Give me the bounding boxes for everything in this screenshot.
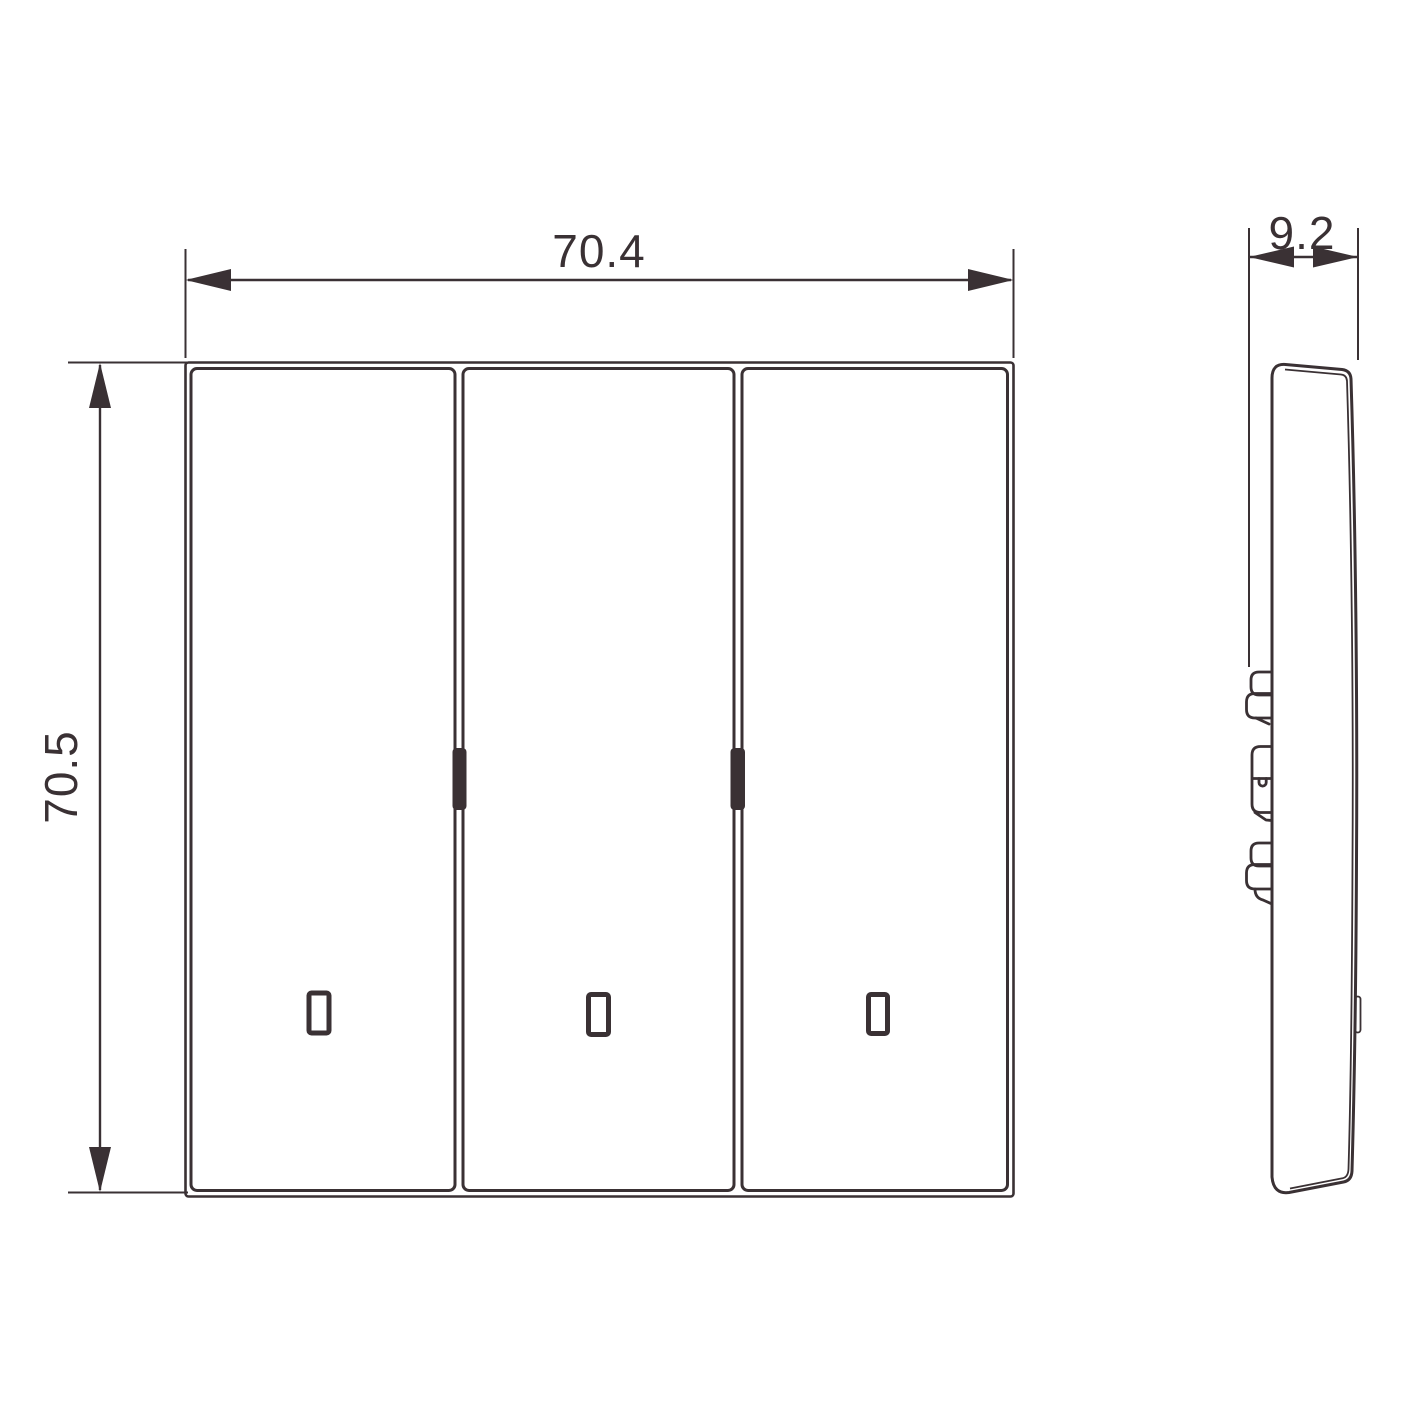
indicator-window-1	[309, 993, 329, 1033]
dimension-height: 70.5	[35, 363, 188, 1193]
dimension-width: 70.4	[186, 225, 1014, 358]
rocker-button-3	[742, 369, 1008, 1191]
mounting-clip-bottom	[1247, 843, 1273, 904]
technical-drawing-canvas: 70.4 70.5 9.2	[0, 0, 1417, 1417]
mounting-clip-top	[1247, 672, 1273, 724]
front-view	[186, 363, 1014, 1197]
rocker-seam-1	[453, 748, 467, 810]
rocker-button-2	[463, 369, 734, 1191]
side-profile-outline	[1272, 364, 1357, 1192]
side-view	[1247, 364, 1361, 1192]
dim-width-label: 70.4	[552, 225, 646, 277]
mounting-clip-middle	[1252, 747, 1272, 821]
divider-highlight-slot	[457, 478, 461, 505]
side-latch-bump	[1355, 997, 1361, 1033]
arrowhead-down-icon	[89, 1147, 111, 1192]
indicator-window-3	[869, 995, 888, 1034]
dim-depth-label: 9.2	[1269, 207, 1336, 259]
arrowhead-left-icon	[186, 269, 232, 291]
indicator-window-2	[589, 995, 609, 1035]
dim-height-label: 70.5	[35, 730, 87, 824]
arrowhead-right-icon	[968, 269, 1014, 291]
switch-dimension-drawing: 70.4 70.5 9.2	[0, 0, 1417, 1417]
arrowhead-up-icon	[89, 363, 111, 408]
rocker-button-1	[191, 369, 455, 1191]
rocker-seam-2	[731, 748, 746, 810]
